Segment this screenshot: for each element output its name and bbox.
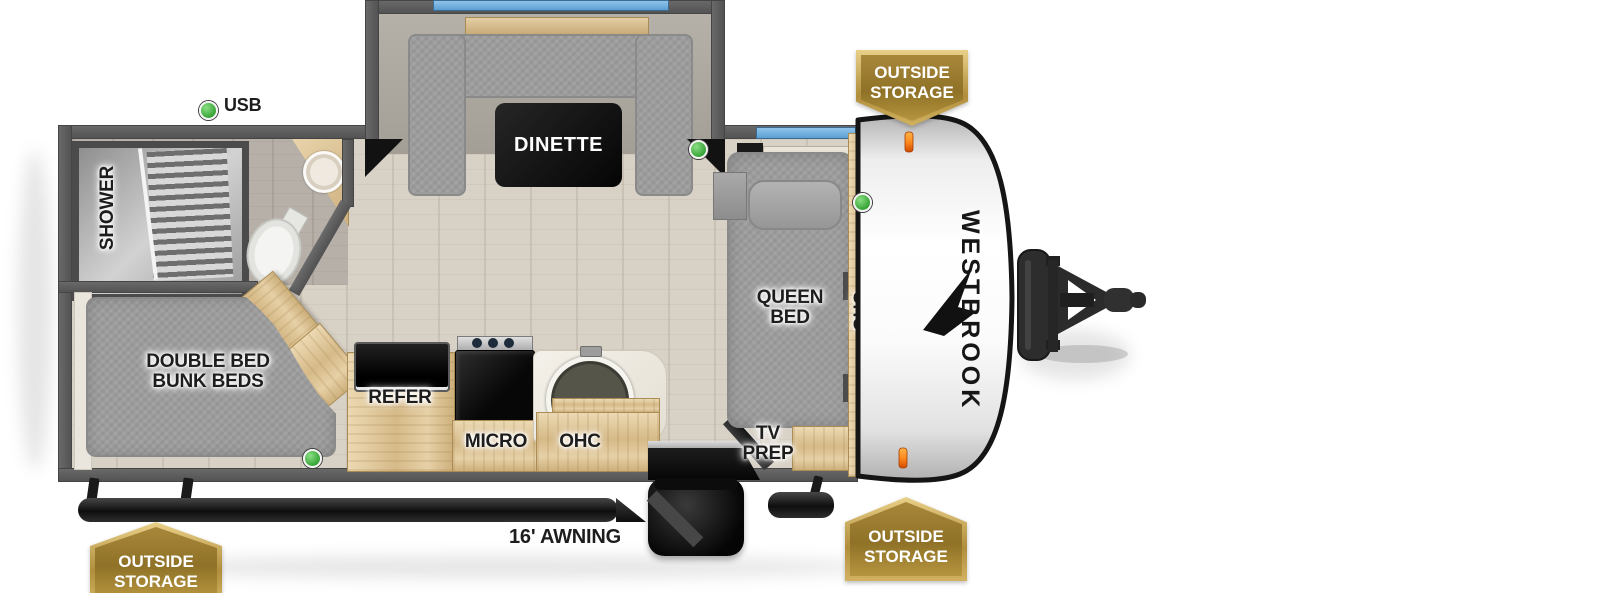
queen-label-line1: QUEEN <box>740 288 840 308</box>
front-window <box>756 127 856 139</box>
awning-tube-end <box>616 498 646 522</box>
slide-left-wall <box>365 0 379 152</box>
coupler <box>1104 288 1134 312</box>
badge-line2: STORAGE <box>114 572 198 591</box>
slide-right-wall <box>711 0 725 152</box>
ground-shadow <box>120 556 880 578</box>
badge-line2: STORAGE <box>870 83 954 102</box>
tv-prep-line2: PREP <box>730 444 806 464</box>
rear-wall <box>58 125 72 482</box>
sink-cover-board <box>552 398 660 413</box>
badge-text: OUTSIDE STORAGE <box>90 552 222 592</box>
micro-label: MICRO <box>453 432 539 452</box>
refrigerator-top <box>354 342 450 392</box>
outside-storage-badge-bottom-right: OUTSIDE STORAGE <box>845 497 967 581</box>
queen-pillow <box>748 180 842 230</box>
dinette-label: DINETTE <box>514 134 603 157</box>
bunk-indicator-dot <box>303 449 322 468</box>
badge-text: OUTSIDE STORAGE <box>845 527 967 567</box>
dinette-bench-left <box>408 34 466 196</box>
stove-knobs <box>472 338 482 348</box>
queen-label: QUEEN BED <box>740 288 840 328</box>
dinette-table: DINETTE <box>495 103 622 187</box>
awning-tube <box>78 498 618 522</box>
kitchen-faucet <box>580 346 602 357</box>
badge-text: OUTSIDE STORAGE <box>856 63 968 103</box>
floor-plan-diagram: SHOWER DOUBLE BED BUNK BEDS REFER MICRO … <box>0 0 1600 593</box>
dinette-bench-right <box>635 34 693 196</box>
hitch-assembly <box>1008 236 1148 368</box>
badge-line2: STORAGE <box>864 547 948 566</box>
tv-prep-label: TV PREP <box>730 424 806 464</box>
badge-line1: OUTSIDE <box>118 552 194 571</box>
tv-prep-line1: TV <box>730 424 806 444</box>
shower-label: SHOWER <box>98 143 118 273</box>
brand-name: WESTBROOK <box>956 210 984 411</box>
awning-tube-short <box>768 492 834 518</box>
coupler-latch <box>1130 292 1146 308</box>
awning-label: 16' AWNING <box>505 527 625 548</box>
left-shadow <box>18 150 52 470</box>
stove-cooktop <box>455 350 535 424</box>
slide-window <box>433 0 669 11</box>
frame-crossbar <box>1048 260 1058 352</box>
entry-step-lip <box>654 478 738 490</box>
bath-sink-bowl <box>303 151 345 193</box>
shower-door-louvers <box>147 148 234 281</box>
propane-cover <box>1018 250 1050 360</box>
bath-wall-stub <box>342 139 354 207</box>
marker-light-top <box>905 132 913 152</box>
usb-label: USB <box>224 96 268 115</box>
outside-storage-badge-top-right: OUTSIDE STORAGE <box>856 50 968 126</box>
bunk-label-line1: DOUBLE BED <box>118 352 298 372</box>
dinette-valance <box>465 17 649 35</box>
dinette-indicator-dot <box>689 140 708 159</box>
jack-bar <box>1060 293 1094 307</box>
bunk-label-line2: BUNK BEDS <box>118 372 298 392</box>
ohc-kitchen-label: OHC <box>542 432 618 452</box>
badge-line1: OUTSIDE <box>868 527 944 546</box>
badge-line1: OUTSIDE <box>874 63 950 82</box>
bunk-label: DOUBLE BED BUNK BEDS <box>118 352 298 392</box>
wardrobe-post <box>713 172 747 220</box>
usb-indicator-dot <box>199 101 218 120</box>
front-cap-shell <box>858 116 1012 481</box>
propane-cover-highlight <box>1025 260 1031 350</box>
outside-storage-badge-bottom-left: OUTSIDE STORAGE <box>90 522 222 593</box>
marker-light-bottom <box>899 448 907 468</box>
queen-label-line2: BED <box>740 308 840 328</box>
queen-indicator-dot <box>853 193 872 212</box>
refer-label: REFER <box>352 388 448 408</box>
